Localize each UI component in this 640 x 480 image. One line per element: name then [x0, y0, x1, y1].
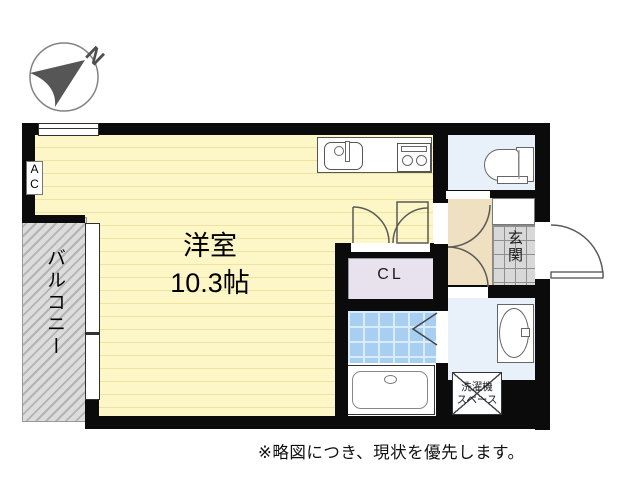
closet-label-wrap: CL — [348, 266, 433, 284]
bath-folding-door — [413, 313, 437, 345]
ac-label-line1: A — [27, 162, 42, 177]
balcony-label: バルコニー — [41, 248, 68, 413]
ac-label-line2: C — [27, 177, 42, 192]
closet-label: CL — [348, 266, 433, 284]
washroom-door-arc — [448, 247, 488, 287]
ac-unit: A C — [26, 161, 43, 195]
floor-plan: 洋室 10.3帖 バルコニー CL 玄関 A C 洗濯機 スペース N ※略図に… — [0, 0, 640, 480]
laundry-label-line1: 洗濯機 — [457, 381, 498, 394]
closet-door-right-arc — [393, 208, 428, 243]
entrance-door-arc — [551, 225, 603, 277]
entrance-door-leaf — [551, 272, 603, 278]
main-room-size: 10.3帖 — [115, 265, 305, 302]
disclaimer-note: ※略図につき、現状を優先します。 — [258, 439, 525, 463]
laundry-label-line2: スペース — [457, 394, 498, 407]
compass: N — [20, 30, 120, 120]
toilet-door-arc — [448, 205, 490, 247]
closet-door-left-arc — [353, 207, 389, 243]
laundry-space: 洗濯機 スペース — [452, 372, 502, 415]
entrance-label: 玄関 — [504, 230, 525, 282]
main-room-name: 洋室 — [115, 228, 305, 265]
main-room-label: 洋室 10.3帖 — [115, 228, 305, 302]
laundry-label: 洗濯機 スペース — [457, 381, 498, 407]
